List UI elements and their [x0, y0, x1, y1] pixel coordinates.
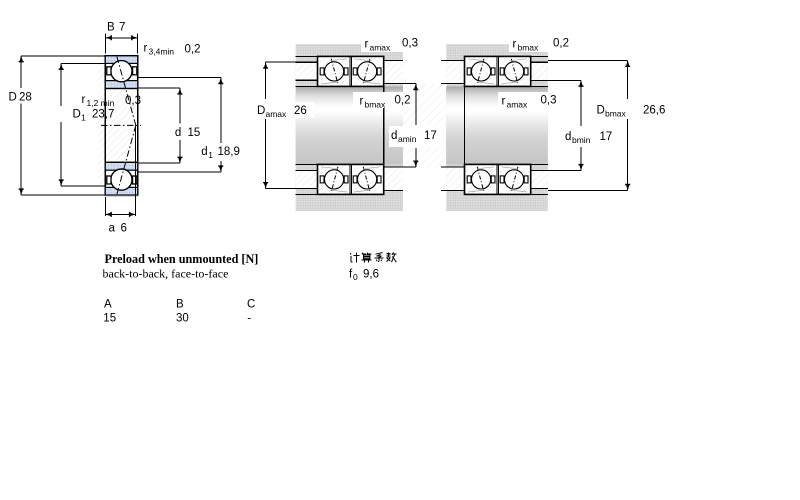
svg-text:r: r [502, 96, 506, 108]
svg-text:bmin: bmin [572, 135, 591, 145]
svg-text:6: 6 [121, 223, 127, 235]
svg-text:0,2: 0,2 [185, 44, 201, 56]
svg-text:back-to-back, face-to-face: back-to-back, face-to-face [103, 267, 229, 281]
svg-text:9,6: 9,6 [363, 269, 379, 281]
svg-text:D: D [257, 105, 265, 117]
svg-text:amin: amin [398, 134, 417, 144]
svg-text:d: d [565, 131, 571, 143]
svg-text:B: B [176, 299, 184, 311]
svg-text:amax: amax [266, 109, 288, 119]
svg-text:bmax: bmax [518, 43, 540, 53]
svg-text:15: 15 [188, 127, 201, 139]
svg-text:1: 1 [208, 150, 213, 160]
svg-text:bmax: bmax [605, 109, 627, 119]
svg-text:1: 1 [81, 113, 86, 123]
svg-text:0,3: 0,3 [125, 95, 141, 107]
svg-text:D: D [73, 109, 81, 121]
svg-text:0,2: 0,2 [553, 38, 569, 50]
svg-text:23,7: 23,7 [92, 109, 114, 121]
svg-text:r: r [360, 96, 364, 108]
svg-text:amax: amax [507, 100, 529, 110]
svg-text:0: 0 [353, 272, 358, 282]
svg-text:a: a [109, 223, 116, 235]
svg-text:17: 17 [424, 130, 437, 142]
svg-text:d: d [391, 130, 397, 142]
svg-text:r: r [82, 94, 86, 106]
svg-text:r: r [365, 39, 369, 51]
svg-text:17: 17 [600, 131, 613, 143]
svg-text:d: d [201, 146, 207, 158]
svg-text:1,2 min: 1,2 min [87, 98, 115, 108]
svg-text:0,2: 0,2 [395, 95, 411, 107]
svg-text:d: d [175, 127, 181, 139]
svg-text:amax: amax [370, 43, 392, 53]
svg-text:15: 15 [103, 313, 116, 325]
svg-text:26,6: 26,6 [643, 105, 665, 117]
svg-text:Preload when unmounted [N]: Preload when unmounted [N] [105, 252, 259, 266]
svg-text:A: A [104, 299, 112, 311]
svg-text:B: B [107, 22, 115, 34]
svg-text:C: C [247, 299, 255, 311]
svg-text:30: 30 [176, 313, 189, 325]
svg-text:28: 28 [19, 92, 32, 104]
svg-text:r: r [144, 43, 148, 55]
svg-text:0,3: 0,3 [402, 38, 418, 50]
svg-text:3,4min: 3,4min [149, 47, 175, 57]
svg-text:18,9: 18,9 [218, 146, 240, 158]
svg-text:r: r [513, 39, 517, 51]
svg-text:-: - [247, 313, 251, 325]
svg-text:D: D [9, 92, 17, 104]
svg-text:26: 26 [294, 105, 307, 117]
svg-text:0,3: 0,3 [541, 95, 557, 107]
svg-text:D: D [597, 105, 605, 117]
svg-text:7: 7 [119, 22, 125, 34]
svg-text:bmax: bmax [365, 100, 387, 110]
